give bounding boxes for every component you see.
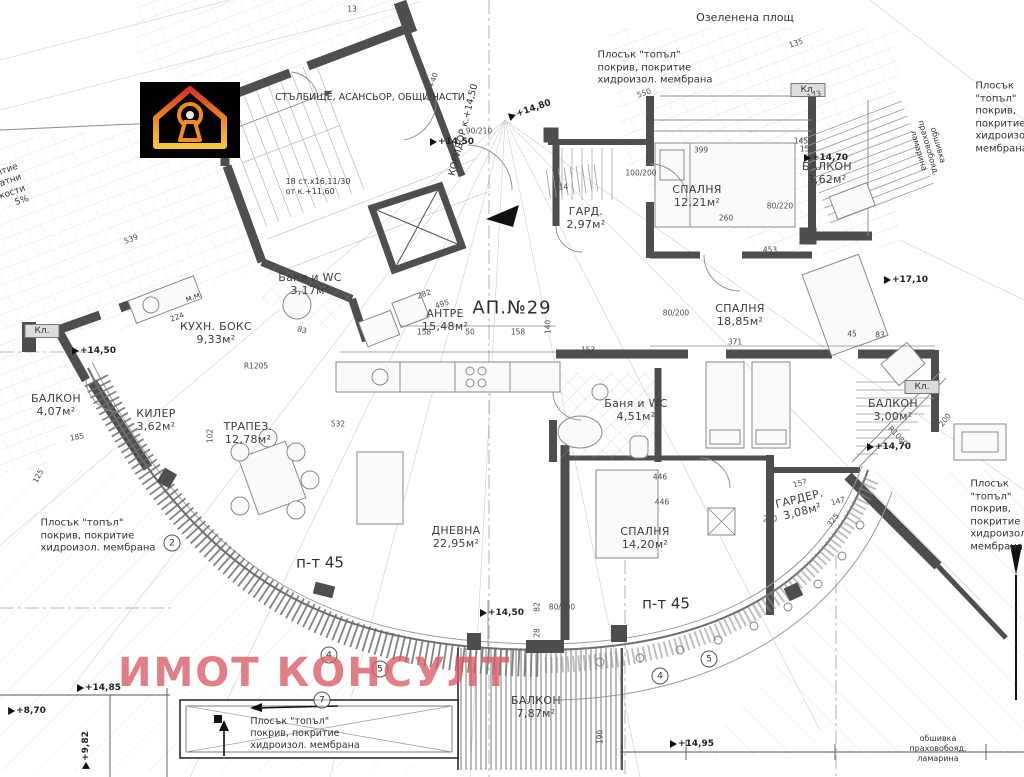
room-label: БАЛКОН3,00м²: [868, 398, 918, 424]
closet-label: Кл.: [24, 324, 59, 338]
level-flag-icon: [430, 138, 437, 146]
dimension-label: 140: [544, 320, 553, 334]
dimension-label: 147: [830, 495, 846, 508]
grid-bubble: 4: [652, 668, 669, 685]
dimension-label: 83: [296, 324, 308, 336]
dimension-label: 325: [825, 512, 841, 529]
dimension-label: 50: [465, 328, 475, 337]
room-label: СПАЛНЯ14,20м²: [620, 526, 669, 552]
level-mark: +14,50: [480, 608, 524, 618]
apartment-number: АП.№29: [472, 298, 551, 319]
room-label: ГАРД.2,97м²: [566, 206, 605, 232]
dimension-label: R1205: [244, 362, 268, 371]
room-label: КИЛЕР3,62м²: [136, 408, 175, 434]
room-label: БАЛКОН7,87м²: [511, 695, 561, 721]
dimension-label: 532: [331, 420, 345, 429]
dimension-label: 82: [533, 602, 542, 612]
level-mark: +14,80: [508, 98, 553, 122]
dimension-label: 83: [875, 331, 885, 340]
dimension-label: 157: [792, 477, 808, 490]
dimension-label: 190: [596, 730, 605, 744]
dimension-label: 114: [554, 183, 568, 192]
room-label: Баня и WC3,17м²: [278, 272, 342, 298]
room-label: Баня и WC4,51м²: [604, 398, 668, 424]
note-label: Озеленена площ: [696, 11, 794, 25]
dimension-label: 80/200: [549, 603, 575, 612]
dimension-label: 80/220: [767, 202, 793, 211]
dimension-label: 158: [511, 328, 525, 337]
dimension-label: 13: [347, 5, 357, 14]
dimension-label: 90/210: [466, 127, 492, 136]
level-mark: +14,85: [77, 683, 121, 693]
room-label: СПАЛНЯ12,21м²: [672, 184, 721, 210]
note-label: м.м.: [184, 289, 204, 304]
level-mark: +14,70: [804, 153, 848, 163]
dimension-label: 371: [728, 338, 742, 347]
level-flag-icon: [804, 154, 811, 162]
note-label: покритие поликарбонатни плоскости 5%: [0, 162, 31, 230]
room-label: БАЛКОН3,62м²: [802, 161, 852, 187]
note-label: Плосък "топъл" покрив, покритие хидроизо…: [40, 517, 155, 555]
room-label: СПАЛНЯ18,85м²: [715, 303, 764, 329]
room-label: ТРАПЕЗ.12,78м²: [224, 421, 273, 447]
dimension-label: 446: [653, 473, 667, 482]
level-flag-icon: [82, 762, 90, 769]
note-label: 18 ст.х16,11/30 от к.+11,60: [286, 177, 351, 197]
room-label: КУХН. БОКС9,33м²: [180, 321, 252, 347]
level-mark: +8,70: [8, 706, 46, 716]
dimension-label: 102: [206, 429, 215, 443]
dimension-label: 200: [763, 515, 777, 524]
note-label: п-т 45: [296, 554, 344, 573]
room-label: ГАРДЕР.3,08м²: [774, 488, 827, 525]
room-label: ДНЕВНА22,95м²: [432, 525, 481, 551]
level-flag-icon: [884, 276, 891, 284]
dimension-label: 260: [719, 214, 733, 223]
note-label: Плосък "топъл" покрив, покритие хидроизо…: [597, 49, 712, 87]
dimension-label: 446: [655, 498, 669, 507]
watermark: ИМОТ КОНСУЛТ: [118, 650, 511, 696]
note-label: Плосък "топъл" покрив, покритие хидроизо…: [970, 479, 1024, 554]
grid-bubble: 2: [164, 535, 181, 552]
level-mark: +17,10: [884, 275, 928, 285]
level-mark: +14,95: [670, 739, 714, 749]
dimension-label: 80/200: [663, 309, 689, 318]
level-mark: +14,50: [430, 137, 474, 147]
dimension-label: 158: [417, 328, 431, 337]
dimension-label: 135: [788, 36, 804, 49]
dimension-label: 28: [533, 628, 542, 638]
closet-label: Кл.: [904, 380, 939, 394]
note-label: Плосък "топъл" покрив, покритие хидроизо…: [250, 716, 359, 752]
dimension-label: 45: [847, 330, 857, 339]
level-flag-icon: [77, 684, 84, 692]
level-mark: +9,82: [81, 731, 91, 769]
level-flag-icon: [8, 707, 15, 715]
dimension-label: 550: [636, 86, 652, 99]
dimension-label: 282: [416, 287, 432, 300]
dimension-label: 153: [581, 346, 595, 355]
level-flag-icon: [670, 740, 677, 748]
dimension-label: 453: [763, 246, 777, 255]
dimension-label: 125: [31, 468, 46, 485]
note-label: СТЪЛБИЩЕ, АСАНСЬОР, ОБЩИ ЧАСТИ: [275, 92, 465, 104]
note-label: обшивка праховобояд. ламарина: [895, 734, 981, 764]
dimension-label: 399: [694, 146, 708, 155]
level-flag-icon: [480, 609, 487, 617]
dimension-label: 200: [937, 412, 953, 429]
floor-plan-page: СПАЛНЯ12,21м²БАЛКОН3,62м²ГАРД.2,97м²Баня…: [0, 0, 1024, 777]
level-mark: +14,50: [72, 346, 116, 356]
grid-bubble: 5: [701, 651, 718, 668]
level-flag-icon: [72, 347, 79, 355]
dimension-label: 539: [123, 232, 140, 246]
level-flag-icon: [867, 443, 874, 451]
dimension-label: 185: [69, 431, 85, 443]
room-label: БАЛКОН4,07м²: [31, 393, 81, 419]
note-label: обшивка праховобояд. ламарина: [900, 98, 955, 199]
note-label: п-т 45: [642, 595, 690, 614]
dimension-label: 100/200: [625, 169, 656, 178]
dimension-label: 150: [800, 145, 814, 154]
note-label: Плосък "топъл" покрив, покритие хидроизо…: [975, 81, 1024, 156]
